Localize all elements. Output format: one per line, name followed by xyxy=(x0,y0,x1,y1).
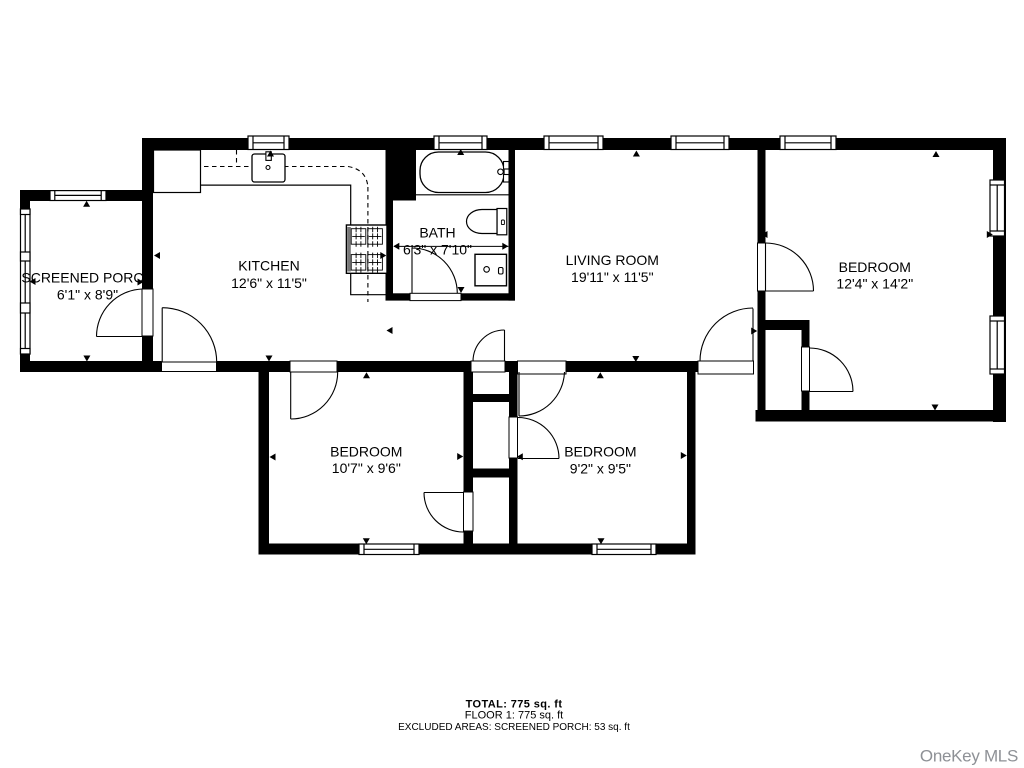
svg-text:EXCLUDED AREAS: SCREENED PORCH: EXCLUDED AREAS: SCREENED PORCH: 53 sq. f… xyxy=(398,722,630,733)
svg-text:19'11" x 11'5": 19'11" x 11'5" xyxy=(571,269,654,285)
svg-text:12'4" x 14'2": 12'4" x 14'2" xyxy=(836,276,913,292)
svg-text:OneKey MLS: OneKey MLS xyxy=(920,747,1018,766)
svg-text:9'2" x 9'5": 9'2" x 9'5" xyxy=(570,460,631,476)
svg-text:SCREENED PORCH: SCREENED PORCH xyxy=(21,270,153,286)
svg-text:BATH: BATH xyxy=(419,225,455,241)
svg-text:6'3" x 7'10": 6'3" x 7'10" xyxy=(403,242,472,258)
svg-text:BEDROOM: BEDROOM xyxy=(330,443,402,459)
svg-text:BEDROOM: BEDROOM xyxy=(839,259,911,275)
svg-text:KITCHEN: KITCHEN xyxy=(238,257,299,273)
svg-text:LIVING ROOM: LIVING ROOM xyxy=(566,252,659,268)
svg-text:FLOOR 1: 775 sq. ft: FLOOR 1: 775 sq. ft xyxy=(465,710,563,722)
svg-text:BEDROOM: BEDROOM xyxy=(564,444,636,460)
svg-text:12'6" x 11'5": 12'6" x 11'5" xyxy=(231,275,307,291)
svg-text:6'1" x 8'9": 6'1" x 8'9" xyxy=(57,287,118,303)
svg-text:10'7" x 9'6": 10'7" x 9'6" xyxy=(332,460,401,476)
